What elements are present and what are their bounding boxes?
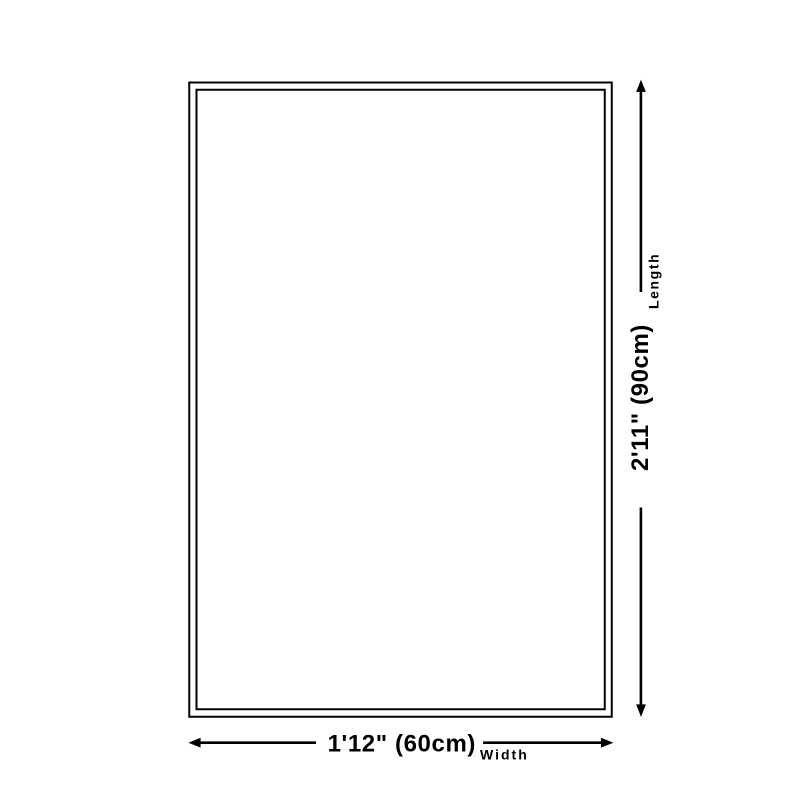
- svg-text:Length: Length: [646, 253, 662, 309]
- svg-text:1'12" (60cm): 1'12" (60cm): [328, 731, 476, 758]
- svg-text:2'11" (90cm): 2'11" (90cm): [627, 324, 654, 471]
- svg-text:Width: Width: [480, 746, 529, 762]
